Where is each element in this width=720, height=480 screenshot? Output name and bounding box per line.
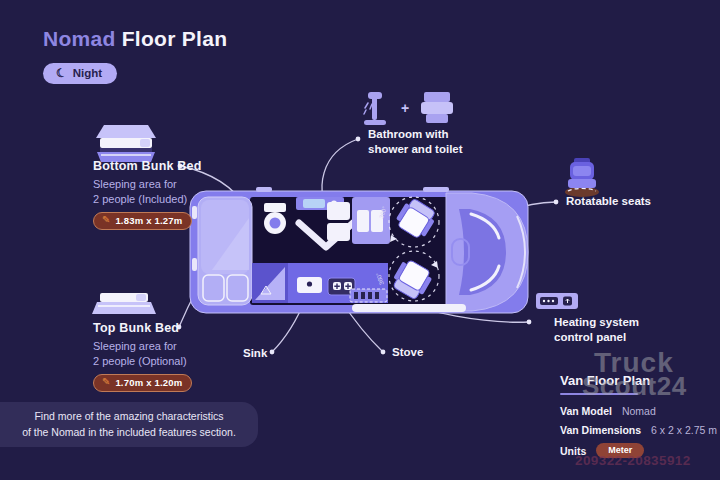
dinette-benches — [327, 202, 350, 241]
van-info-panel: Van Floor Plan Van Model Nomad Van Dimen… — [560, 373, 716, 465]
cab — [446, 193, 528, 311]
bottom-bunk-title: Bottom Bunk Bed — [93, 158, 263, 174]
bottom-bunk-dimensions-badge: ✎ 1.83m x 1.27m — [93, 212, 192, 230]
shower-unit — [296, 197, 344, 210]
pillow — [227, 275, 248, 301]
top-bunk-title: Top Bunk Bed — [93, 320, 263, 336]
connector-sink — [272, 298, 306, 352]
toilet — [264, 203, 286, 234]
bottom-bunk-dimensions: 1.83m x 1.27m — [115, 215, 182, 226]
night-mode-label: Night — [73, 67, 102, 79]
plus-icon: + — [401, 100, 409, 116]
windshield — [459, 209, 506, 295]
units-label: Units — [560, 445, 586, 457]
info-row-dimensions: Van Dimensions 6 x 2 x 2.75 m — [560, 424, 716, 436]
rotatable-seat-top: 360° — [378, 196, 439, 247]
feature-top-bunk: Top Bunk Bed Sleeping area for 2 people … — [93, 320, 263, 392]
feature-heating-label: Heating system control panel — [554, 315, 639, 345]
bottom-bunk-subtitle: Sleeping area for 2 people (Included) — [93, 177, 263, 206]
entry-step — [352, 304, 466, 312]
van-model-value: Nomad — [622, 405, 656, 417]
info-panel-heading: Van Floor Plan — [560, 373, 716, 388]
interior-floor — [250, 197, 448, 305]
heating-panel-icon — [536, 293, 578, 309]
bottom-bunk-icon — [96, 125, 156, 162]
steering-wheel — [452, 239, 469, 265]
rear-door-handle — [192, 258, 197, 271]
footer-note: Find more of the amazing characteristics… — [0, 402, 258, 447]
info-row-units: Units Meter — [560, 443, 716, 458]
seat-rotation-label: 360° — [378, 205, 388, 219]
connector-stove — [340, 299, 383, 352]
connector-heating — [391, 299, 529, 322]
top-bunk-icon — [92, 293, 156, 314]
feature-sink-label: Sink — [243, 346, 267, 361]
heating-grille — [350, 289, 387, 302]
connector-bathroom — [322, 139, 358, 222]
shower-icon — [364, 92, 386, 125]
stove-unit — [328, 278, 355, 295]
pencil-icon: ✎ — [102, 215, 110, 225]
van-dimensions-value: 6 x 2 x 2.75 m — [651, 424, 717, 436]
pillow — [203, 275, 224, 301]
rotatable-seat-icon — [565, 158, 599, 197]
heading-underline — [560, 393, 638, 395]
sink-unit — [297, 277, 322, 293]
toilet-label-icon — [421, 92, 453, 123]
rotatable-seat-bottom: 360° — [375, 251, 439, 302]
pencil-icon: ✎ — [102, 377, 110, 387]
kitchen-shelf — [252, 263, 288, 303]
page-title-accent: Nomad — [43, 27, 116, 50]
feature-bottom-bunk: Bottom Bunk Bed Sleeping area for 2 peop… — [93, 158, 263, 230]
top-bunk-dimensions-badge: ✎ 1.70m x 1.20m — [93, 374, 192, 392]
van-model-label: Van Model — [560, 405, 612, 417]
top-bunk-dimensions: 1.70m x 1.20m — [115, 377, 182, 388]
page-title: NomadFloor Plan — [43, 27, 227, 51]
kitchen-counter — [288, 263, 388, 303]
night-mode-badge[interactable]: ☾ Night — [43, 63, 117, 84]
info-row-model: Van Model Nomad — [560, 405, 716, 417]
van-dimensions-label: Van Dimensions — [560, 424, 641, 436]
feature-bathroom-label: Bathroom with shower and toilet — [368, 127, 463, 157]
feature-rotatable-seats-label: Rotatable seats — [566, 194, 651, 209]
top-bunk-subtitle: Sleeping area for 2 people (Optional) — [93, 339, 263, 368]
seat-rotation-label: 360° — [375, 271, 385, 285]
connector-top-bunk — [179, 248, 221, 327]
connector-rotatable-seats — [431, 202, 556, 271]
units-value-pill[interactable]: Meter — [596, 443, 644, 458]
moon-icon: ☾ — [55, 66, 69, 80]
floor-arrow — [299, 223, 353, 247]
feature-stove-label: Stove — [392, 345, 423, 360]
page-title-rest: Floor Plan — [122, 27, 228, 50]
roof-vent — [423, 187, 449, 192]
wardrobe — [352, 197, 390, 244]
